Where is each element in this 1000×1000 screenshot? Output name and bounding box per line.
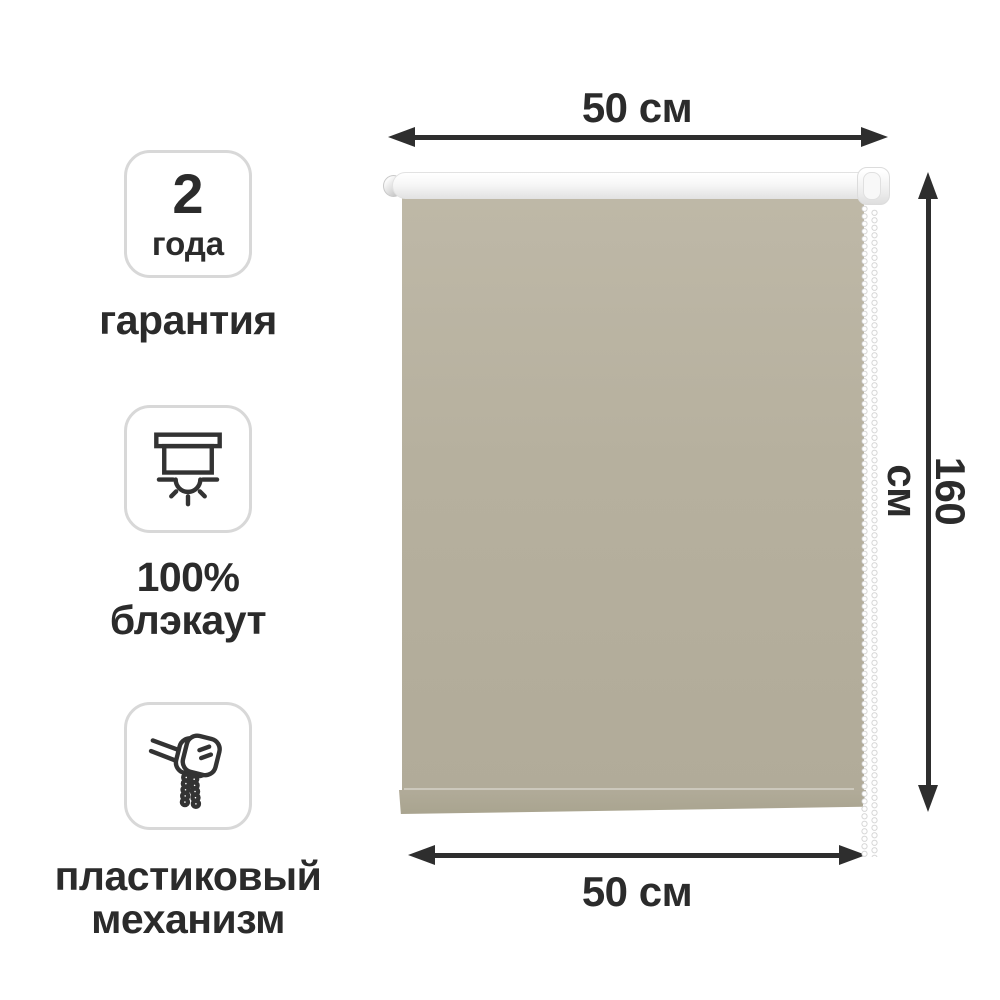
mechanism-badge [124,702,252,830]
blind-fabric [402,198,864,792]
arrow-line [424,853,850,858]
arrow-head-right-icon [861,127,888,147]
mechanism-label: пластиковый механизм [20,855,356,941]
warranty-years-value: 2 [172,166,203,222]
roller-mechanism-icon [144,722,232,810]
bead-chain-strand-back [871,209,878,857]
roller-tube [392,172,874,199]
arrow-head-down-icon [918,785,938,812]
warranty-badge: 2 года [124,150,252,278]
blackout-label-line2: блэкаут [110,597,266,643]
width-label-top: 50 см [497,84,777,132]
blackout-label: 100% блэкаут [20,556,356,642]
blackout-badge [124,405,252,533]
height-label-right: 160 см [932,431,974,551]
width-arrow-top [388,127,888,147]
blind-fabric-hem [399,790,866,814]
warranty-years-unit: года [152,226,224,262]
arrow-line [404,135,872,140]
blackout-label-line1: 100% [137,554,240,600]
width-arrow-bottom [408,845,866,865]
warranty-label-line: гарантия [99,297,277,343]
width-label-bottom: 50 см [497,868,777,916]
warranty-label: гарантия [20,299,356,342]
blackout-blind-icon [144,425,232,513]
bead-chain-strand-front [861,205,868,857]
mechanism-label-line1: пластиковый [55,853,322,899]
roller-chain-mechanism [857,167,890,205]
mechanism-label-line2: механизм [91,896,285,942]
blind-fabric-crease [404,788,854,790]
product-card: 2 года гарантия 100% блэкаут [0,0,1000,1000]
